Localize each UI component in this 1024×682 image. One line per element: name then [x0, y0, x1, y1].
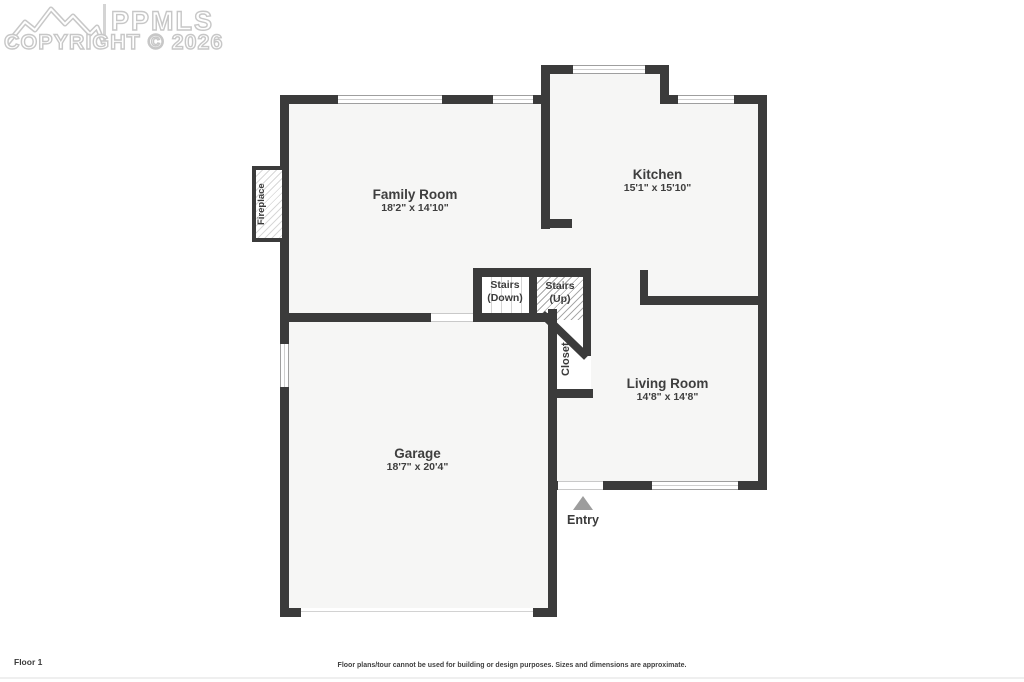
stairs-down-label: Stairs (Down) — [474, 279, 536, 305]
wall — [473, 268, 591, 277]
room-dimensions: 18'7" x 20'4" — [330, 461, 505, 474]
fireplace-label: Fireplace — [256, 170, 282, 238]
room-label-family-room: Family Room 18'2" x 14'10" — [320, 187, 510, 215]
window — [573, 65, 645, 74]
room-label-kitchen: Kitchen 15'1" x 15'10" — [595, 167, 720, 195]
room-name: Family Room — [320, 187, 510, 202]
entry-label: Entry — [560, 513, 606, 527]
wall — [758, 95, 767, 490]
window — [338, 95, 442, 104]
closet-label: Closet — [560, 330, 578, 388]
wall — [541, 219, 572, 228]
window — [493, 95, 533, 104]
wall — [541, 65, 550, 229]
wall — [640, 296, 767, 305]
door-opening — [431, 313, 473, 322]
floorplan-canvas: PPMLS COPYRIGHT © 2026 — [0, 0, 1024, 682]
copyright-text: COPYRIGHT © 2026 — [4, 30, 223, 55]
bottom-divider — [0, 677, 1024, 679]
stairs-up-label: Stairs (Up) — [532, 280, 588, 306]
entry-arrow-icon — [573, 496, 593, 510]
room-label-garage: Garage 18'7" x 20'4" — [330, 446, 505, 474]
room-name: Garage — [330, 446, 505, 461]
fireplace: Fireplace — [252, 166, 286, 242]
room-name: Living Room — [585, 376, 750, 391]
stairs-down-line2: (Down) — [474, 292, 536, 305]
stairs-down-line1: Stairs — [474, 279, 536, 292]
floor-area — [284, 489, 554, 613]
wall — [548, 309, 557, 617]
wall — [280, 313, 431, 322]
window — [652, 481, 738, 490]
garage-door — [301, 608, 533, 617]
window — [678, 95, 734, 104]
room-dimensions: 18'2" x 14'10" — [320, 202, 510, 215]
wall — [473, 313, 548, 322]
window — [280, 344, 289, 387]
watermark: PPMLS COPYRIGHT © 2026 — [0, 0, 260, 60]
stairs-up-line1: Stairs — [532, 280, 588, 293]
stairs-up-line2: (Up) — [532, 293, 588, 306]
entry-door-opening — [558, 481, 603, 490]
room-dimensions: 15'1" x 15'10" — [595, 182, 720, 195]
room-name: Kitchen — [595, 167, 720, 182]
room-label-living-room: Living Room 14'8" x 14'8" — [585, 376, 750, 404]
disclaimer-text: Floor plans/tour cannot be used for buil… — [0, 662, 1024, 669]
room-dimensions: 14'8" x 14'8" — [585, 391, 750, 404]
